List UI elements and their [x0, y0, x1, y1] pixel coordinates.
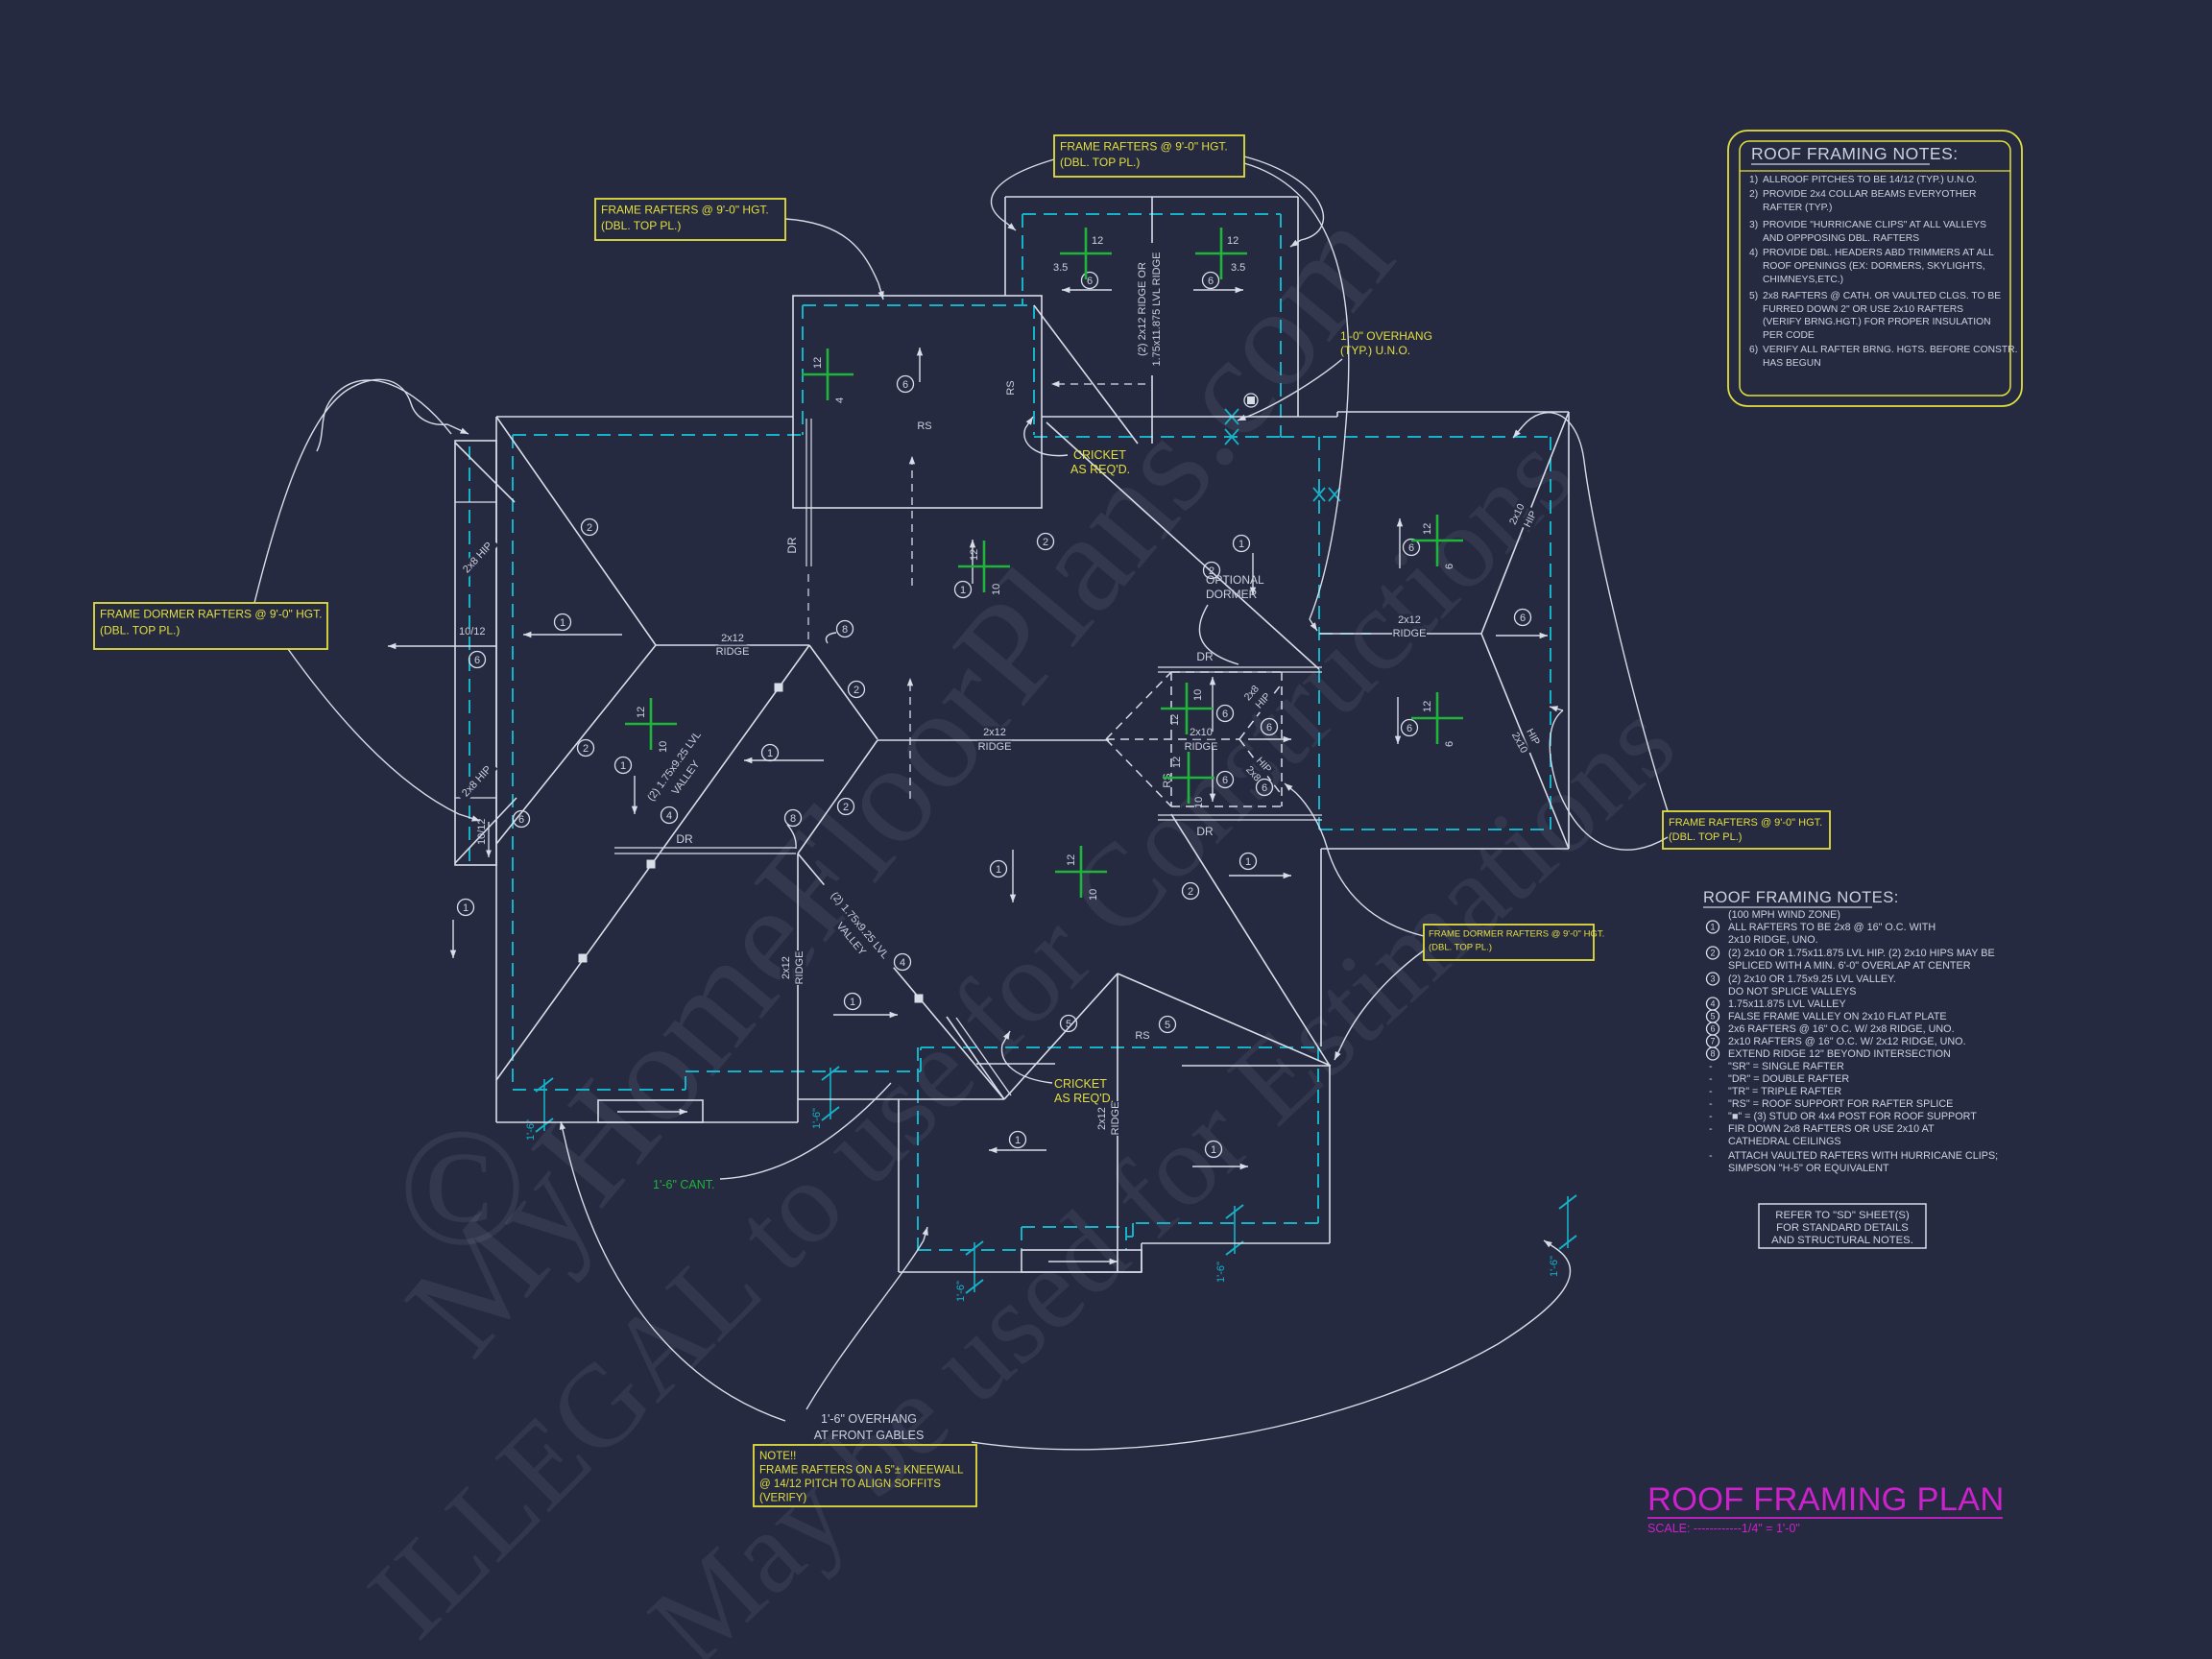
svg-text:2x12: 2x12: [983, 727, 1006, 738]
svg-text:12: 12: [1066, 854, 1077, 866]
svg-text:FRAME DORMER RAFTERS @ 9'-0" H: FRAME DORMER RAFTERS @ 9'-0" HGT.: [100, 608, 322, 621]
svg-text:SCALE: ------------1/4" = 1'-0: SCALE: ------------1/4" = 1'-0": [1647, 1522, 1800, 1535]
svg-text:PER CODE: PER CODE: [1763, 330, 1815, 341]
svg-text:6: 6: [1520, 613, 1526, 624]
svg-text:1.75x11.875 LVL RIDGE: 1.75x11.875 LVL RIDGE: [1151, 252, 1163, 366]
svg-text:12: 12: [969, 549, 980, 561]
svg-text:8: 8: [842, 624, 848, 636]
svg-text:6: 6: [1407, 723, 1412, 734]
svg-text:ROOF FRAMING NOTES:: ROOF FRAMING NOTES:: [1703, 889, 1899, 906]
svg-text:1.75x11.875 LVL VALLEY: 1.75x11.875 LVL VALLEY: [1728, 998, 1846, 1010]
svg-text:10/12: 10/12: [476, 818, 488, 845]
svg-text:12: 12: [1169, 714, 1181, 726]
svg-text:AS REQ'D.: AS REQ'D.: [1070, 463, 1130, 476]
svg-text:1: 1: [463, 902, 469, 914]
svg-text:(DBL. TOP PL.): (DBL. TOP PL.): [1429, 943, 1492, 953]
svg-text:ROOF OPENINGS (EX: DORMERS, SK: ROOF OPENINGS (EX: DORMERS, SKYLIGHTS,: [1763, 261, 1985, 272]
svg-text:(DBL. TOP PL.): (DBL. TOP PL.): [601, 219, 681, 232]
svg-text:10: 10: [1192, 689, 1204, 701]
svg-text:1'-6": 1'-6": [955, 1281, 967, 1302]
svg-text:FIR DOWN 2x8 RAFTERS OR USE 2x: FIR DOWN 2x8 RAFTERS OR USE 2x10 AT: [1728, 1123, 1935, 1135]
svg-text:(DBL. TOP PL.): (DBL. TOP PL.): [100, 624, 180, 637]
svg-text:FRAME RAFTERS ON A 5"± KNEEWAL: FRAME RAFTERS ON A 5"± KNEEWALL: [759, 1465, 964, 1477]
svg-text:-: -: [1709, 1073, 1713, 1085]
svg-text:FURRED DOWN 2" OR USE 2x10 RAF: FURRED DOWN 2" OR USE 2x10 RAFTERS: [1763, 304, 1963, 315]
svg-text:EXTEND RIDGE 12" BEYOND INTERS: EXTEND RIDGE 12" BEYOND INTERSECTION: [1728, 1048, 1951, 1060]
svg-text:6: 6: [1262, 782, 1267, 794]
svg-text:4: 4: [834, 397, 846, 403]
svg-text:10/12: 10/12: [459, 626, 486, 637]
svg-text:6: 6: [1710, 1024, 1715, 1034]
svg-text:PROVIDE DBL. HEADERS ABD TRIMM: PROVIDE DBL. HEADERS ABD TRIMMERS AT ALL: [1763, 248, 1994, 258]
svg-text:10: 10: [1193, 797, 1205, 808]
svg-text:4: 4: [666, 810, 672, 822]
svg-text:AS REQ'D.: AS REQ'D.: [1054, 1092, 1114, 1105]
svg-text:NOTE!!: NOTE!!: [759, 1451, 796, 1462]
svg-text:6: 6: [1222, 775, 1228, 786]
svg-text:FALSE FRAME VALLEY ON 2x10 FLA: FALSE FRAME VALLEY ON 2x10 FLAT PLATE: [1728, 1011, 1947, 1022]
svg-text:2: 2: [587, 522, 592, 534]
svg-text:"RS" = ROOF SUPPORT FOR RAFT: "RS" = ROOF SUPPORT FOR RAFTER SPLICE: [1728, 1098, 1953, 1110]
svg-text:(2) 2x10 OR 1.75x11.875 LVL HI: (2) 2x10 OR 1.75x11.875 LVL HIP. (2) 2x1…: [1728, 948, 1995, 959]
svg-text:PROVIDE 2x4 COLLAR BEAMS EVERY: PROVIDE 2x4 COLLAR BEAMS EVERYOTHER: [1763, 189, 1976, 200]
svg-text:RS: RS: [917, 421, 931, 432]
svg-text:1): 1): [1749, 175, 1758, 185]
svg-text:DR: DR: [676, 832, 693, 846]
svg-text:1'-6" CANT.: 1'-6" CANT.: [653, 1178, 714, 1191]
svg-text:2x12: 2x12: [781, 956, 792, 979]
svg-text:RIDGE: RIDGE: [1110, 1102, 1121, 1136]
svg-text:VERIFY ALL RAFTER BRNG. HGTS.: VERIFY ALL RAFTER BRNG. HGTS. BEFORE CON…: [1763, 345, 2017, 355]
svg-text:1'-6" OVERHANG: 1'-6" OVERHANG: [821, 1412, 917, 1426]
svg-text:1: 1: [850, 997, 855, 1008]
svg-text:12: 12: [1092, 235, 1103, 247]
svg-text:10: 10: [991, 584, 1002, 595]
svg-text:-: -: [1709, 1111, 1713, 1122]
svg-text:DR: DR: [1196, 825, 1214, 838]
svg-text:RIDGE: RIDGE: [716, 646, 750, 658]
svg-text:FRAME RAFTERS @ 9'-0" HGT.: FRAME RAFTERS @ 9'-0" HGT.: [601, 204, 769, 217]
svg-text:2: 2: [843, 802, 849, 813]
svg-text:4: 4: [1710, 999, 1715, 1009]
svg-text:7: 7: [1710, 1037, 1715, 1046]
svg-text:1: 1: [1710, 923, 1715, 932]
svg-text:6: 6: [474, 655, 480, 666]
svg-text:(VERIFY): (VERIFY): [759, 1493, 806, 1504]
svg-text:1'-6": 1'-6": [1549, 1256, 1560, 1277]
svg-text:2x10: 2x10: [1190, 727, 1213, 738]
svg-text:1: 1: [996, 864, 1001, 876]
svg-text:2x12: 2x12: [1096, 1107, 1108, 1130]
svg-text:6): 6): [1749, 345, 1758, 355]
svg-text:5: 5: [1710, 1012, 1715, 1022]
svg-text:2x10 RIDGE, UNO.: 2x10 RIDGE, UNO.: [1728, 934, 1818, 946]
svg-text:-: -: [1709, 1061, 1713, 1072]
svg-text:PROVIDE "HURRICANE CLIPS" AT A: PROVIDE "HURRICANE CLIPS" AT ALL VALLEYS: [1763, 220, 1986, 230]
svg-text:ATTACH VAULTED RAFTERS WITH HU: ATTACH VAULTED RAFTERS WITH HURRICANE CL…: [1728, 1150, 1998, 1162]
svg-text:8: 8: [790, 813, 796, 825]
svg-text:SIMPSON "H-5" OR EQUIVALENT: SIMPSON "H-5" OR EQUIVALENT: [1728, 1163, 1889, 1174]
svg-text:"SR" = SINGLE RAFTER: "SR" = SINGLE RAFTER: [1728, 1061, 1844, 1072]
svg-text:CATHEDRAL CEILINGS: CATHEDRAL CEILINGS: [1728, 1136, 1841, 1147]
svg-text:HAS BEGUN: HAS BEGUN: [1763, 358, 1821, 369]
svg-text:2x12: 2x12: [1398, 614, 1421, 626]
svg-text:5): 5): [1749, 291, 1758, 301]
svg-text:4): 4): [1749, 248, 1758, 258]
svg-text:3.5: 3.5: [1053, 262, 1068, 274]
svg-text:-: -: [1709, 1086, 1713, 1097]
svg-text:ROOF FRAMING PLAN: ROOF FRAMING PLAN: [1647, 1481, 2004, 1518]
svg-text:AND OPPPOSING DBL. RAFTERS: AND OPPPOSING DBL. RAFTERS: [1763, 233, 1919, 244]
svg-text:(DBL. TOP PL.): (DBL. TOP PL.): [1060, 156, 1140, 169]
svg-text:RS: RS: [1135, 1030, 1149, 1042]
svg-text:RS: RS: [1005, 380, 1017, 395]
svg-text:6: 6: [1222, 709, 1228, 720]
svg-text:6: 6: [902, 379, 908, 391]
svg-text:12: 12: [1422, 701, 1433, 712]
svg-text:2x6 RAFTERS @ 16" O.C. W/ 2x8: 2x6 RAFTERS @ 16" O.C. W/ 2x8 RIDGE, UNO…: [1728, 1023, 1955, 1035]
svg-text:DO NOT SPLICE VALLEYS: DO NOT SPLICE VALLEYS: [1728, 986, 1856, 998]
svg-text:6: 6: [1087, 276, 1093, 287]
svg-text:(TYP.) U.N.O.: (TYP.) U.N.O.: [1340, 344, 1410, 357]
svg-text:1: 1: [560, 617, 565, 629]
svg-text:FRAME RAFTERS @ 9'-0" HGT.: FRAME RAFTERS @ 9'-0" HGT.: [1669, 817, 1822, 829]
svg-text:1: 1: [1211, 1144, 1216, 1156]
svg-text:6: 6: [1444, 564, 1455, 569]
svg-text:DR: DR: [785, 537, 799, 554]
svg-text:(VERIFY BRNG.HGT.) FOR PROPER: (VERIFY BRNG.HGT.) FOR PROPER INSULATION: [1763, 317, 1991, 327]
svg-text:5: 5: [1165, 1020, 1170, 1031]
svg-text:RIDGE: RIDGE: [794, 951, 805, 985]
svg-text:-: -: [1709, 1098, 1713, 1110]
svg-text:2x8 RAFTERS @ CATH. OR VAULTED: 2x8 RAFTERS @ CATH. OR VAULTED CLGS. TO …: [1763, 291, 2001, 301]
svg-text:(2) 2x12 RIDGE OR: (2) 2x12 RIDGE OR: [1137, 262, 1148, 356]
svg-text:FOR STANDARD DETAILS: FOR STANDARD DETAILS: [1776, 1222, 1909, 1234]
svg-text:1'-6": 1'-6": [1215, 1262, 1227, 1283]
svg-text:2: 2: [1043, 537, 1048, 548]
svg-text:AT FRONT GABLES: AT FRONT GABLES: [814, 1429, 925, 1442]
svg-text:10: 10: [658, 741, 669, 753]
svg-text:1'-0" OVERHANG: 1'-0" OVERHANG: [1340, 329, 1432, 343]
svg-text:1'-6": 1'-6": [811, 1108, 823, 1129]
svg-text:ALLROOF PITCHES TO BE 14/12 (: ALLROOF PITCHES TO BE 14/12 (TYP.) U.N.O…: [1763, 175, 1977, 185]
svg-text:2: 2: [583, 743, 589, 755]
svg-text:12: 12: [1227, 235, 1238, 247]
svg-text:(100 MPH WIND ZONE): (100 MPH WIND ZONE): [1728, 909, 1840, 921]
svg-text:12: 12: [812, 357, 824, 369]
svg-text:REFER TO "SD" SHEET(S): REFER TO "SD" SHEET(S): [1775, 1210, 1910, 1221]
svg-text:(DBL. TOP PL.): (DBL. TOP PL.): [1669, 831, 1742, 843]
svg-text:2: 2: [1188, 886, 1193, 898]
svg-text:6: 6: [518, 814, 524, 826]
svg-text:-: -: [1709, 1150, 1713, 1162]
svg-text:-: -: [1709, 1123, 1713, 1135]
svg-text:SPLICED WITH A MIN. 6'-0" OVER: SPLICED WITH A MIN. 6'-0" OVERLAP AT CEN…: [1728, 960, 1971, 972]
svg-text:OPTIONAL: OPTIONAL: [1206, 573, 1264, 587]
svg-text:1: 1: [1015, 1135, 1021, 1146]
svg-text:CRICKET: CRICKET: [1054, 1077, 1107, 1091]
svg-text:RS: RS: [1162, 773, 1173, 787]
svg-text:2): 2): [1749, 189, 1758, 200]
svg-text:1: 1: [620, 760, 626, 772]
svg-text:AND STRUCTURAL NOTES.: AND STRUCTURAL NOTES.: [1771, 1235, 1913, 1246]
svg-text:"TR" = TRIPLE RAFTER: "TR" = TRIPLE RAFTER: [1728, 1086, 1841, 1097]
svg-text:4: 4: [900, 957, 905, 969]
svg-text:RIDGE: RIDGE: [1393, 628, 1427, 639]
svg-text:"DR" = DOUBLE RAFTER: "DR" = DOUBLE RAFTER: [1728, 1073, 1849, 1085]
svg-text:1: 1: [1245, 856, 1251, 868]
svg-text:2x12: 2x12: [721, 633, 744, 644]
svg-text:"■" = (3) STUD OR 4x4 POST: "■" = (3) STUD OR 4x4 POST FOR ROOF SUPP…: [1728, 1111, 1977, 1122]
svg-text:12: 12: [636, 707, 647, 718]
svg-text:6: 6: [1266, 722, 1272, 733]
svg-text:2x10 RAFTERS @ 16" O.C. W/ 2x1: 2x10 RAFTERS @ 16" O.C. W/ 2x12 RIDGE, U…: [1728, 1036, 1966, 1047]
svg-text:3): 3): [1749, 220, 1758, 230]
svg-text:12: 12: [1422, 523, 1433, 535]
svg-text:2: 2: [854, 685, 859, 696]
svg-text:3.5: 3.5: [1231, 262, 1245, 274]
svg-text:@ 14/12 PITCH TO ALIGN SOFFITS: @ 14/12 PITCH TO ALIGN SOFFITS: [759, 1479, 941, 1490]
svg-text:5: 5: [1066, 1019, 1071, 1030]
svg-text:6: 6: [1408, 542, 1414, 554]
svg-text:CRICKET: CRICKET: [1073, 448, 1126, 462]
svg-text:RAFTER (TYP.): RAFTER (TYP.): [1763, 203, 1832, 213]
svg-text:FRAME DORMER RAFTERS @ 9'-0" H: FRAME DORMER RAFTERS @ 9'-0" HGT.: [1429, 929, 1604, 940]
svg-text:FRAME RAFTERS @ 9'-0" HGT.: FRAME RAFTERS @ 9'-0" HGT.: [1060, 140, 1228, 154]
svg-text:DORMER: DORMER: [1206, 588, 1258, 601]
svg-text:ROOF FRAMING NOTES:: ROOF FRAMING NOTES:: [1751, 144, 1959, 163]
svg-text:12: 12: [1171, 757, 1183, 768]
svg-text:ALL RAFTERS TO BE 2x8 @ 16" O.: ALL RAFTERS TO BE 2x8 @ 16" O.C. WITH: [1728, 922, 1935, 933]
svg-text:RIDGE: RIDGE: [978, 741, 1012, 753]
svg-text:10: 10: [1088, 889, 1099, 901]
svg-text:1: 1: [960, 585, 966, 596]
svg-text:(2) 2x10 OR 1.75x9.25 LVL VALL: (2) 2x10 OR 1.75x9.25 LVL VALLEY.: [1728, 974, 1896, 985]
svg-text:6: 6: [1208, 276, 1214, 287]
svg-text:2: 2: [1710, 949, 1715, 958]
svg-text:1: 1: [767, 748, 773, 759]
svg-text:8: 8: [1710, 1049, 1715, 1059]
svg-text:6: 6: [1444, 741, 1455, 747]
svg-text:1: 1: [1238, 539, 1244, 550]
svg-text:CHIMNEYS,ETC.): CHIMNEYS,ETC.): [1763, 275, 1843, 285]
svg-text:3: 3: [1710, 974, 1715, 984]
